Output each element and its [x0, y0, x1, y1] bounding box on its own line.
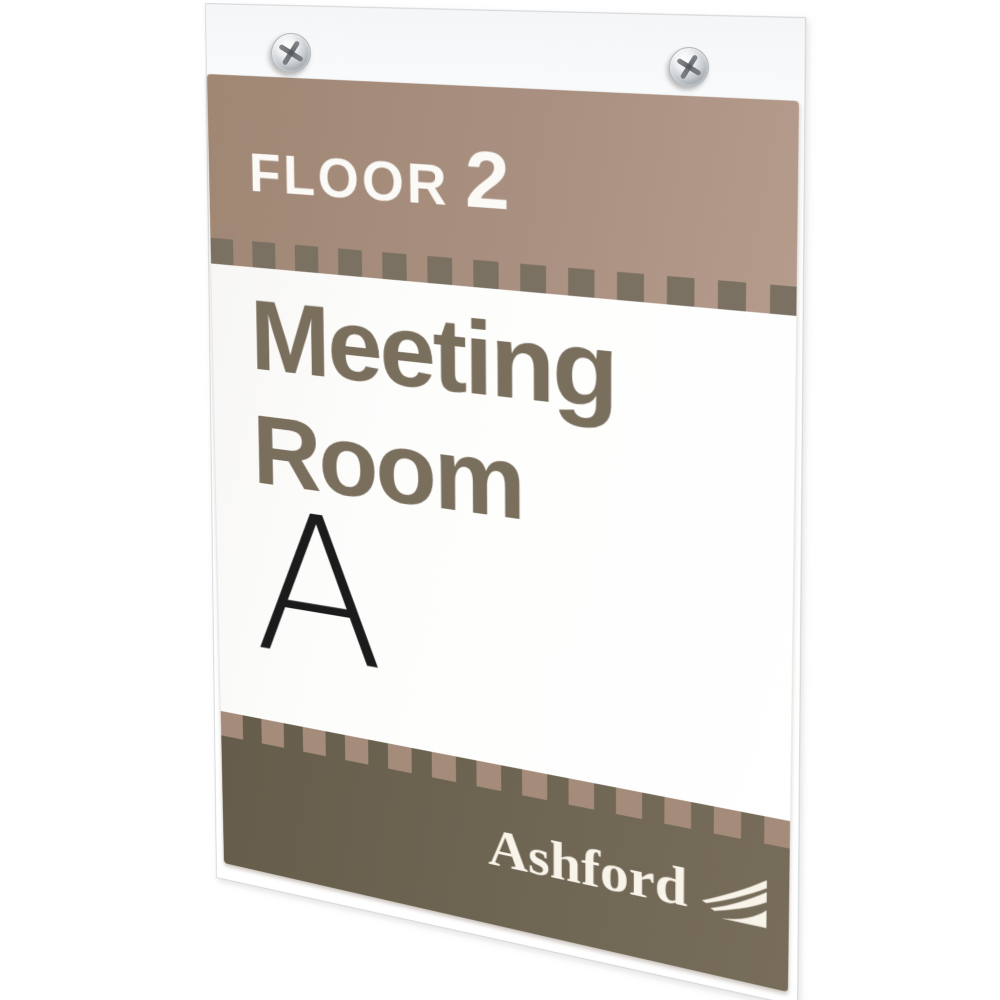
room-letter: A	[251, 474, 384, 709]
screw-top-right-icon	[669, 47, 709, 87]
product-photo: FLOOR 2 Meeting Room A Ashford	[0, 0, 1000, 1000]
ashford-leaf-icon	[700, 866, 769, 931]
screw-top-left-icon	[271, 33, 311, 73]
floor-number: 2	[465, 133, 510, 229]
sign-paper: FLOOR 2 Meeting Room A Ashford	[207, 74, 799, 992]
ashford-logo: Ashford	[488, 820, 769, 934]
ashford-wordmark: Ashford	[488, 820, 688, 916]
floor-label: FLOOR 2	[248, 121, 510, 229]
floor-label-text: FLOOR	[249, 142, 450, 220]
